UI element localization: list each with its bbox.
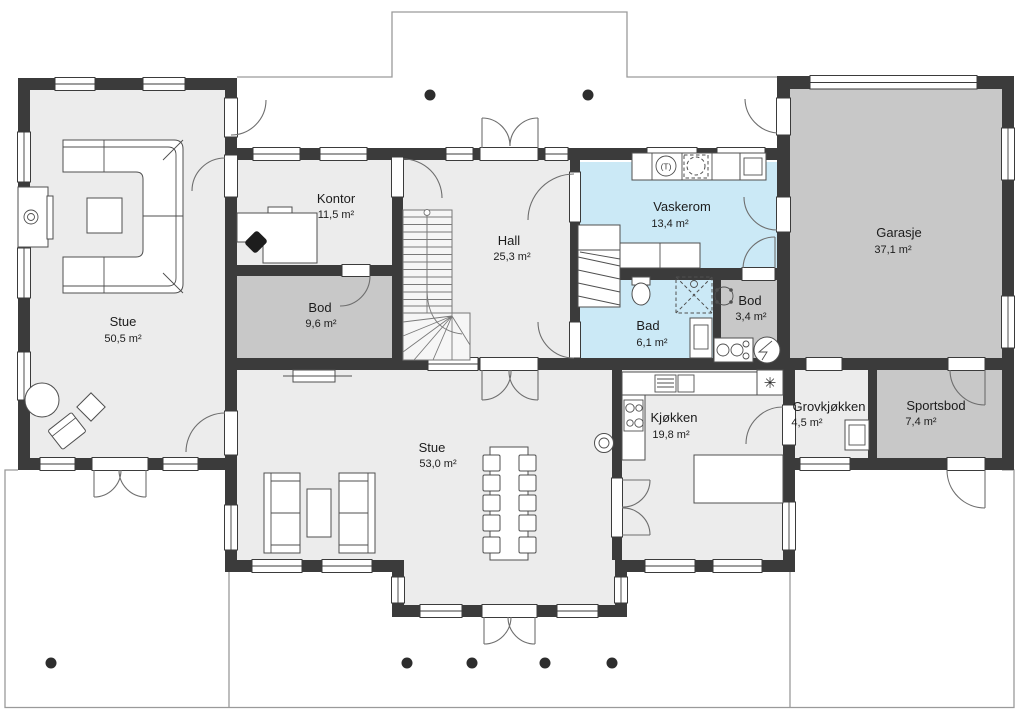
- window: [420, 605, 462, 618]
- room-area-vaskerom: 13,4 m²: [651, 218, 689, 230]
- terrace-double-door: [482, 605, 537, 645]
- room-area-stue-lower: 53,0 m²: [419, 458, 457, 470]
- window: [713, 560, 762, 573]
- window: [392, 577, 405, 603]
- room-label-kjokken: Kjøkken: [651, 410, 698, 425]
- window: [800, 458, 850, 471]
- entrance-double-door: [480, 118, 538, 161]
- window: [645, 560, 695, 573]
- room-floor-garasje: [790, 89, 1002, 358]
- window: [252, 560, 302, 573]
- stue-upper-exterior-door: [225, 98, 267, 137]
- room-floor-bod-1: [237, 276, 392, 358]
- window: [18, 132, 31, 182]
- room-area-hall: 25,3 m²: [493, 251, 531, 263]
- room-area-kontor: 11,5 m²: [318, 209, 355, 221]
- grovkjokken-garasje-opening: [806, 358, 842, 371]
- room-label-kontor: Kontor: [317, 191, 356, 206]
- window: [545, 148, 568, 161]
- sportsbod-exterior-door: [947, 458, 985, 509]
- garasje-exterior-side-door: [745, 98, 791, 135]
- window: [615, 577, 628, 603]
- room-area-bod-1: 9,6 m²: [305, 318, 337, 330]
- window: [1002, 296, 1015, 348]
- window: [163, 458, 198, 471]
- window: [783, 502, 796, 550]
- room-area-bod-2: 3,4 m²: [735, 311, 767, 323]
- window: [253, 148, 300, 161]
- room-area-kjokken: 19,8 m²: [652, 429, 690, 441]
- room-area-garasje: 37,1 m²: [874, 244, 912, 256]
- window: [225, 505, 238, 550]
- window: [446, 148, 473, 161]
- window: [322, 560, 372, 573]
- room-label-sportsbod: Sportsbod: [906, 398, 965, 413]
- garage-port: [810, 76, 977, 90]
- vent-symbol: ✳: [764, 375, 777, 392]
- dryer-symbol: (T): [661, 162, 672, 172]
- room-area-sportsbod: 7,4 m²: [905, 416, 937, 428]
- room-area-bad: 6,1 m²: [636, 337, 668, 349]
- window: [1002, 128, 1015, 180]
- room-label-hall: Hall: [498, 233, 521, 248]
- window: [18, 248, 31, 298]
- window: [320, 148, 367, 161]
- floor-plan: (T) ✳: [0, 0, 1018, 720]
- room-label-bod-1: Bod: [308, 300, 331, 315]
- room-area-grovkjokken: 4,5 m²: [791, 417, 823, 429]
- room-label-bad: Bad: [636, 318, 659, 333]
- room-label-vaskerom: Vaskerom: [653, 199, 711, 214]
- fixtures-grovkjokken: [845, 420, 869, 450]
- room-label-garasje: Garasje: [876, 225, 922, 240]
- room-label-stue-lower: Stue: [419, 440, 446, 455]
- stue-upper-french-door: [92, 458, 148, 498]
- window: [55, 78, 95, 91]
- room-label-bod-2: Bod: [738, 293, 761, 308]
- floor-plan-drawing: (T) ✳: [0, 0, 1018, 720]
- room-label-grovkjokken: Grovkjøkken: [793, 399, 866, 414]
- window: [40, 458, 75, 471]
- window: [143, 78, 185, 91]
- window: [557, 605, 598, 618]
- room-label-stue-upper: Stue: [110, 314, 137, 329]
- room-floor-sportsbod: [877, 370, 1002, 458]
- room-area-stue-upper: 50,5 m²: [104, 333, 142, 345]
